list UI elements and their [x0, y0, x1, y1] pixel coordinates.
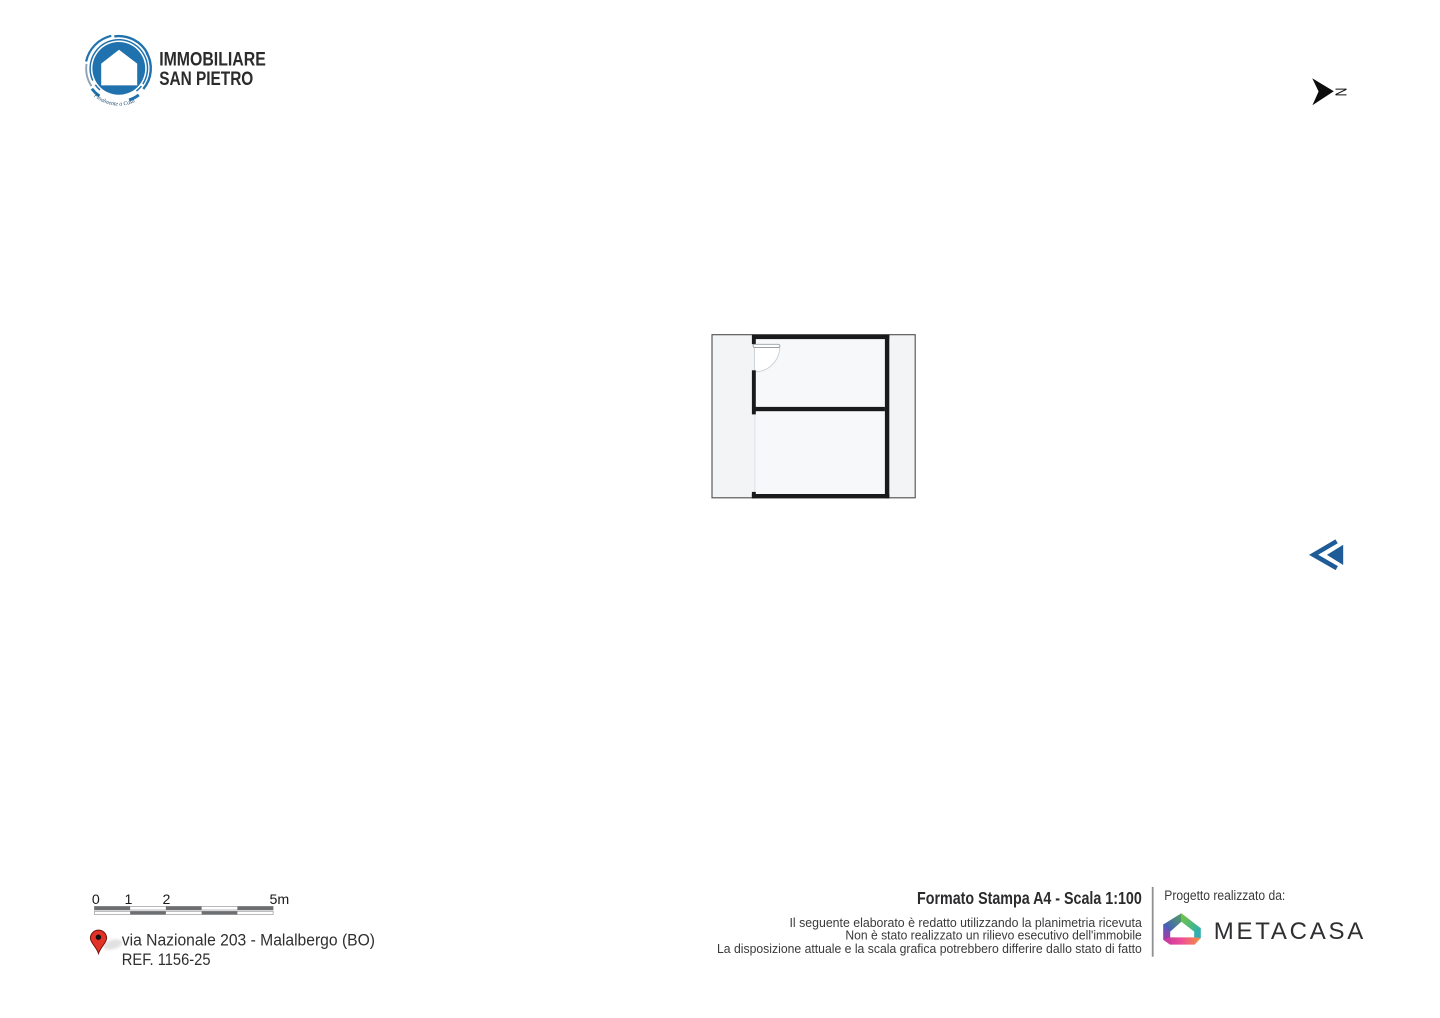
svg-text:N: N: [1331, 88, 1348, 97]
svg-text:2: 2: [163, 892, 171, 908]
svg-text:1: 1: [125, 892, 133, 908]
svg-text:0: 0: [92, 892, 100, 908]
svg-text:REF. 1156-25: REF. 1156-25: [122, 950, 211, 969]
svg-text:Progetto realizzato da:: Progetto realizzato da:: [1164, 888, 1285, 903]
svg-text:Formato Stampa A4 - Scala 1:10: Formato Stampa A4 - Scala 1:100: [917, 888, 1142, 908]
svg-text:La disposizione attuale e la s: La disposizione attuale e la scala grafi…: [717, 941, 1142, 956]
svg-text:METACASA: METACASA: [1214, 918, 1364, 945]
svg-text:SAN PIETRO: SAN PIETRO: [159, 68, 253, 90]
svg-text:5m: 5m: [269, 892, 289, 908]
svg-text:via Nazionale 203 - Malalbergo: via Nazionale 203 - Malalbergo (BO): [122, 930, 375, 949]
